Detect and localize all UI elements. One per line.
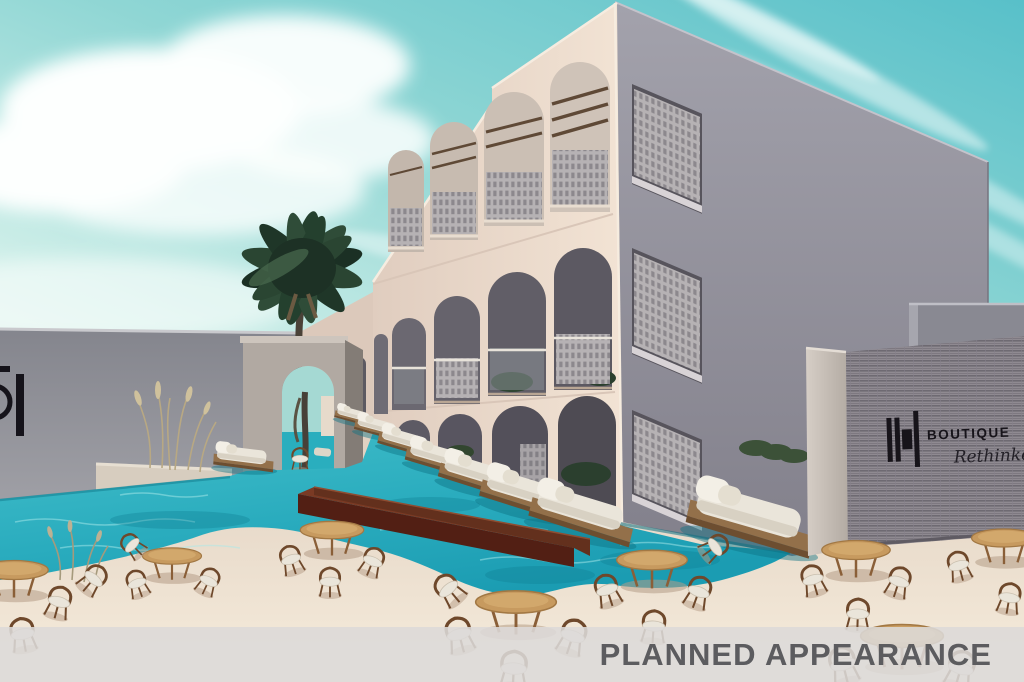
balcony-breeze-screens [632,84,702,531]
resort-rendering: BOUTIQUE Rethinked [0,0,1024,682]
wall-sign-brand: BOUTIQUE [927,425,1011,443]
caption-banner-label: PLANNED APPEARANCE [600,637,992,673]
right-textured-wall: BOUTIQUE Rethinked [806,336,1024,556]
caption-banner: PLANNED APPEARANCE [0,627,1024,682]
rendering-canvas: BOUTIQUE Rethinked [0,0,1024,682]
wall-sign-tagline: Rethinked [952,445,1024,468]
